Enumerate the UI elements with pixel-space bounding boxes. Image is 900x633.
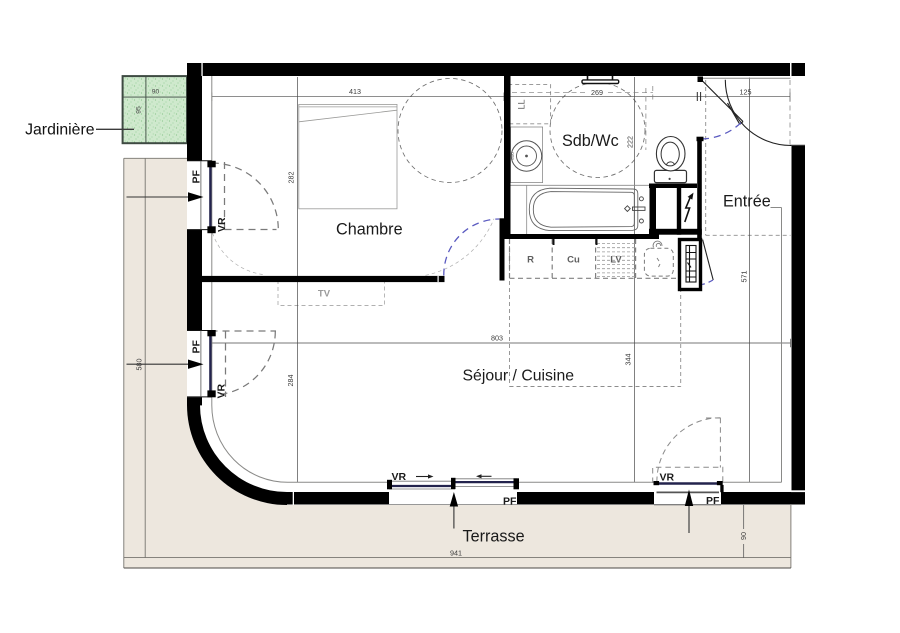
svg-text:R: R xyxy=(527,255,534,266)
svg-text:PF: PF xyxy=(191,339,203,353)
svg-text:284: 284 xyxy=(286,375,295,387)
svg-text:TV: TV xyxy=(318,289,331,300)
svg-text:LL: LL xyxy=(517,99,527,109)
svg-text:VR: VR xyxy=(392,471,407,483)
svg-text:222: 222 xyxy=(626,136,635,148)
svg-text:282: 282 xyxy=(287,172,296,184)
svg-text:90: 90 xyxy=(739,532,748,540)
svg-text:571: 571 xyxy=(740,271,749,283)
svg-text:269: 269 xyxy=(591,88,603,97)
svg-text:344: 344 xyxy=(624,354,633,366)
svg-text:941: 941 xyxy=(450,549,462,558)
svg-text:VR: VR xyxy=(660,472,675,484)
svg-text:803: 803 xyxy=(491,334,503,343)
svg-text:PF: PF xyxy=(503,496,517,508)
svg-text:90: 90 xyxy=(152,89,160,96)
svg-text:Séjour / Cuisine: Séjour / Cuisine xyxy=(463,368,575,385)
svg-text:600: 600 xyxy=(510,152,515,160)
svg-text:Terrasse: Terrasse xyxy=(463,528,525,546)
svg-text:PF: PF xyxy=(706,495,720,507)
svg-text:125: 125 xyxy=(740,88,752,97)
svg-text:Chambre: Chambre xyxy=(336,221,403,239)
svg-text:Cu: Cu xyxy=(567,255,580,266)
svg-text:413: 413 xyxy=(349,87,361,96)
svg-text:Entrée: Entrée xyxy=(723,193,771,211)
svg-text:VR: VR xyxy=(216,217,228,232)
svg-text:VR: VR xyxy=(216,383,228,398)
svg-text:95: 95 xyxy=(136,106,143,114)
svg-text:Sdb/Wc: Sdb/Wc xyxy=(562,132,619,150)
svg-text:Jardinière: Jardinière xyxy=(25,122,95,139)
svg-text:PF: PF xyxy=(191,169,203,183)
